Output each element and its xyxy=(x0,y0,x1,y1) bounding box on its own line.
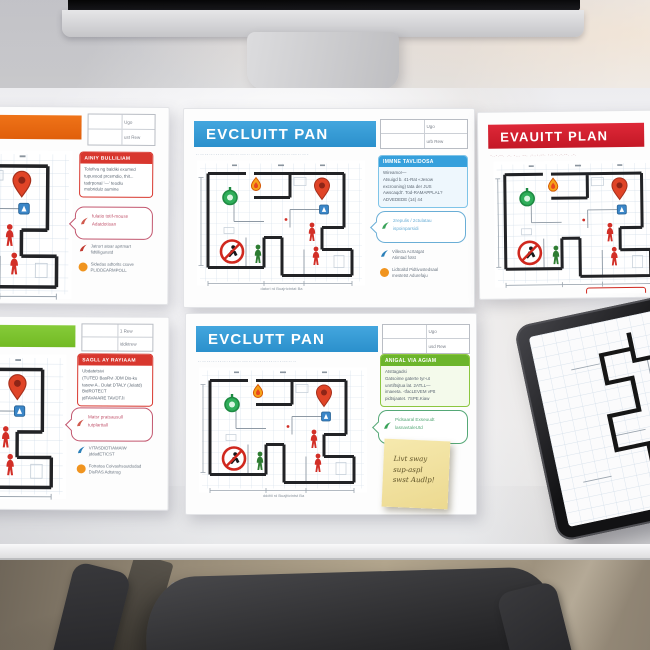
assembly-dot-icon xyxy=(77,464,86,473)
info-box: IMMNE TAVLIDOSA Wireamor— Atsuigd b. 41-… xyxy=(378,155,468,208)
route-arrow-icon xyxy=(381,221,390,230)
callout-bubble: 2repulis / 2ctulatau ispoinparsidi xyxy=(376,211,466,243)
title-block-field: Ugo xyxy=(122,115,155,129)
route-arrow-icon xyxy=(79,243,88,252)
plan-caption: dddtti rd Buajttctntst Ba xyxy=(196,493,371,498)
title-block: Ugo ust Rew xyxy=(87,114,155,146)
doc-header-bar xyxy=(0,324,75,347)
document-mid-left: 1 Rew iddktrew SAGLL AY RAYIAAM Ubdatets… xyxy=(0,315,170,511)
sticky-note-line: swst Audlp! xyxy=(393,475,443,486)
legend-item: Sidedas adtorlts csuvePLIDDEARMPOLL xyxy=(79,261,153,274)
title-block-field: urb Rew xyxy=(425,134,468,148)
legend-item: Fotratoa CoivashsoutdsdadDisRAS Adtstrog xyxy=(77,463,153,476)
info-box-header: IMMNE TAVLIDOSA xyxy=(379,156,467,167)
assembly-point-label: AIDLL PIN xyxy=(586,287,646,295)
title-block: Ugo urb Rew xyxy=(380,119,468,149)
doc-header-bar: EVCLUITT PAN xyxy=(194,121,376,147)
info-box-header: SAGLL AY RAYIAAM xyxy=(78,354,152,365)
legend: VITASDIDTIAMAIWjddadETICST Fotratoa Coiv… xyxy=(77,445,153,481)
floor-plan: dddtti rd Buajttctntst Ba xyxy=(196,364,371,500)
title-block-field: Ugo xyxy=(425,120,468,133)
sticky-note-line: sup-aspl xyxy=(393,464,443,475)
document-top-left: Ugo ust Rew AINIY BULLILIAM Tolofiva ng … xyxy=(0,105,170,305)
doc-header-bar: EVCLUTT PAN xyxy=(196,326,378,352)
title-block: 1 Rew iddktrew xyxy=(81,323,153,351)
title-block-field: 1 Rew xyxy=(118,325,153,337)
monitor-stand xyxy=(247,32,399,90)
desk-scene: Ugo ust Rew AINIY BULLILIAM Tolofiva ng … xyxy=(0,0,650,650)
assembly-dot-icon xyxy=(79,262,88,271)
floor-plan: datori rd Buajrtctntat Ba xyxy=(194,157,369,293)
doc-header-bar xyxy=(0,114,82,139)
legend-item: Lidtcaltd Pidtivustedsaalmestetst Aduref… xyxy=(380,267,466,280)
legend-item: Jatrort atoar aprtmartfidtilligunstd xyxy=(79,243,153,256)
doc-title: EVAUITT PLAN xyxy=(500,128,608,144)
document-top-center: EVCLUITT PAN Ugo urb Rew -..-.--.-..--.-… xyxy=(183,108,475,308)
sticky-note: Livt sway sup-aspl swst Audlp! xyxy=(382,439,451,510)
legend-item: Villecta AcrtatgatAtimtad fotst xyxy=(380,249,466,262)
doc-title: EVCLUTT PAN xyxy=(208,331,325,348)
document-top-right: EVAUITT PLAN -..-.--. .-. -... --. .-..-… xyxy=(477,108,650,300)
info-box-header: ANIGAL VIA AGIAM xyxy=(381,355,469,366)
callout-bubble: fulatio totif-mouse Adatdotisan xyxy=(75,206,153,240)
title-block-field: usd Rew xyxy=(427,339,470,353)
info-box: SAGLL AY RAYIAAM Ubdatetsivi (TUTED BasR… xyxy=(77,353,153,407)
info-box: ANIGAL VIA AGIAM Atsttagadsi Gatsoime ga… xyxy=(380,354,470,407)
route-arrow-icon xyxy=(80,217,89,226)
floor-plan xyxy=(0,146,77,307)
legend: Villecta AcrtatgatAtimtad fotst Lidtcalt… xyxy=(380,249,466,285)
info-box: AINIY BULLILIAM Tolofiva ng baldiki exum… xyxy=(79,151,153,198)
doc-header-bar: EVAUITT PLAN xyxy=(488,123,644,149)
desk-front-edge xyxy=(0,544,650,560)
doc-title: EVCLUITT PAN xyxy=(206,126,328,143)
legend: Jatrort atoar aprtmartfidtilligunstd Sid… xyxy=(78,243,152,279)
route-arrow-icon xyxy=(383,421,392,430)
floor-plan: AIDLL PIN xyxy=(490,157,650,295)
callout-bubble: Matsr pratsausull tutplarttall xyxy=(71,407,153,441)
assembly-dot-icon xyxy=(380,268,389,277)
title-block-field: ust Rew xyxy=(122,130,155,145)
route-arrow-icon xyxy=(77,445,86,454)
sticky-note-line: Livt sway xyxy=(394,454,444,465)
route-arrow-icon xyxy=(380,249,389,258)
title-block-field: Ugo xyxy=(427,325,470,338)
title-block: Ugo usd Rew xyxy=(382,324,470,354)
legend-item: VITASDIDTIAMAIWjddadETICST xyxy=(77,445,153,458)
title-block-field: iddktrew xyxy=(118,338,153,351)
info-box-header: AINIY BULLILIAM xyxy=(80,152,152,164)
plan-caption: datori rd Buajrtctntat Ba xyxy=(194,286,369,291)
route-arrow-icon xyxy=(76,418,85,427)
floor-plan xyxy=(0,350,71,507)
